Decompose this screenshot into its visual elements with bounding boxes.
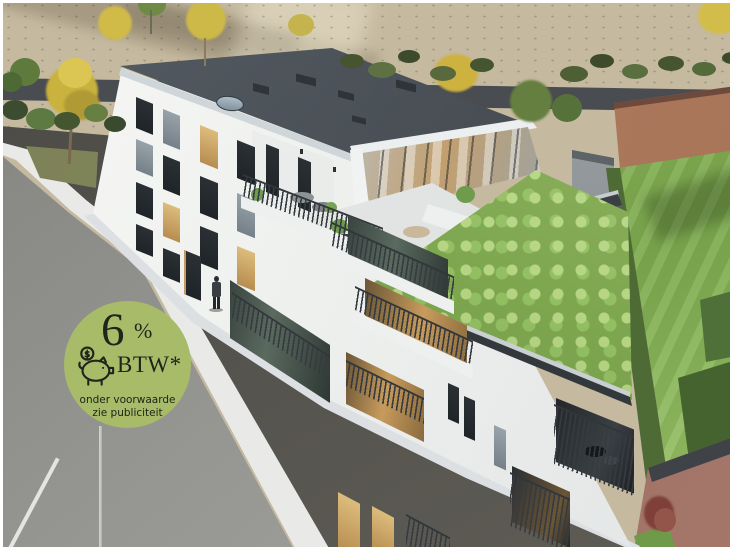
pedestrian-body [212, 282, 221, 297]
bush [340, 54, 364, 68]
vat-condition-note: onder voorwaarde zie publiciteit [64, 394, 191, 420]
bush [560, 66, 588, 82]
roof-tree [456, 186, 475, 203]
bush [104, 116, 126, 132]
window [136, 139, 153, 177]
bush [470, 58, 494, 72]
window [448, 383, 459, 424]
bush [54, 112, 80, 130]
bush [398, 50, 420, 63]
bush [430, 66, 456, 81]
bush [722, 52, 736, 64]
window [163, 109, 180, 150]
bush [692, 62, 716, 76]
window [163, 202, 180, 243]
tree-trunk [150, 10, 152, 34]
bush [26, 108, 56, 130]
tree-canopy [288, 14, 314, 36]
piggy-bank-icon: $ [71, 344, 117, 393]
tree-canopy [552, 94, 582, 122]
window [200, 226, 218, 270]
terrace-dining-set [403, 226, 430, 238]
bush [658, 56, 684, 71]
window [136, 182, 153, 220]
vat-condition-line1: onder voorwaarde [64, 394, 191, 407]
bush [2, 100, 28, 120]
window [200, 125, 218, 169]
vat-promo-badge: 6 % $ BTW* onder voorwaarde zie publicit… [64, 301, 191, 428]
tree-trunk [204, 38, 206, 66]
tree-canopy [510, 80, 552, 122]
window [163, 155, 180, 196]
pedestrian-leg [213, 297, 216, 309]
bush [590, 54, 614, 68]
tree-canopy [186, 0, 226, 40]
window [464, 396, 475, 441]
lamp-post [99, 426, 102, 550]
entrance-door [184, 250, 201, 301]
tree-canopy [698, 0, 736, 34]
vat-condition-line2: zie publiciteit [64, 407, 191, 420]
pedestrian-leg [217, 297, 220, 309]
tree-canopy [98, 6, 132, 40]
window [237, 246, 255, 291]
window [136, 97, 153, 135]
bush [622, 64, 648, 79]
wall-lamp [300, 149, 303, 154]
red-tree-canopy [654, 508, 676, 532]
vat-label: BTW* [117, 353, 182, 376]
bush [368, 62, 396, 78]
svg-text:$: $ [84, 350, 90, 360]
vat-rate-percent: % [134, 320, 152, 342]
tree-canopy [58, 58, 92, 88]
window [200, 176, 218, 220]
pedestrian-shadow [209, 308, 223, 312]
pedestrian [209, 276, 223, 314]
window [494, 425, 506, 470]
architectural-render: 6 % $ BTW* onder voorwaarde zie publicit… [0, 0, 736, 550]
wall-lamp [333, 167, 336, 172]
tree-canopy [0, 72, 22, 92]
